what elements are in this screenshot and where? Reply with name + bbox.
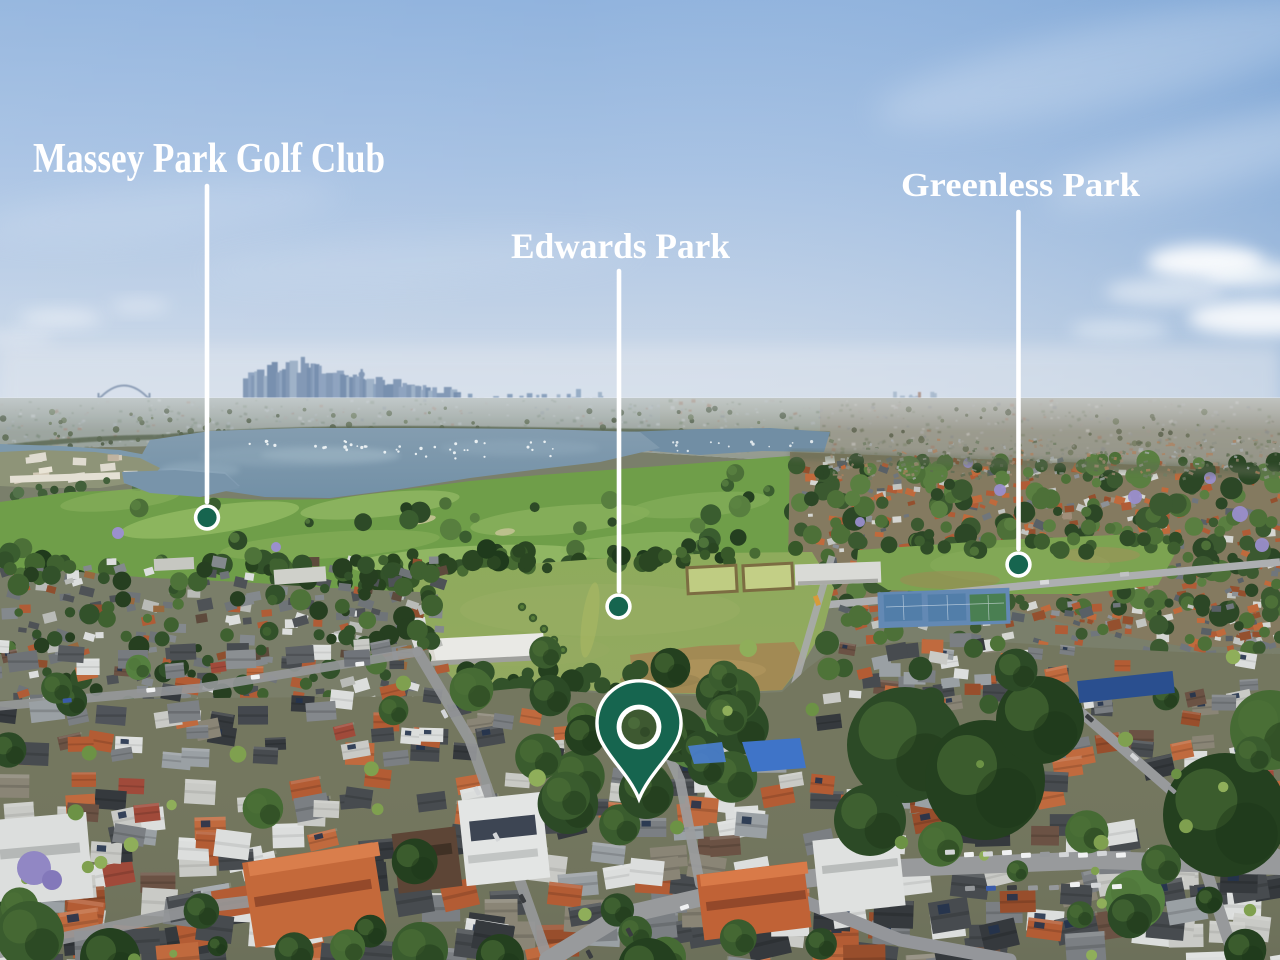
svg-text:Greenless Park: Greenless Park — [901, 167, 1140, 204]
svg-text:Edwards Park: Edwards Park — [511, 226, 730, 266]
svg-text:Massey Park Golf Club: Massey Park Golf Club — [33, 136, 385, 182]
